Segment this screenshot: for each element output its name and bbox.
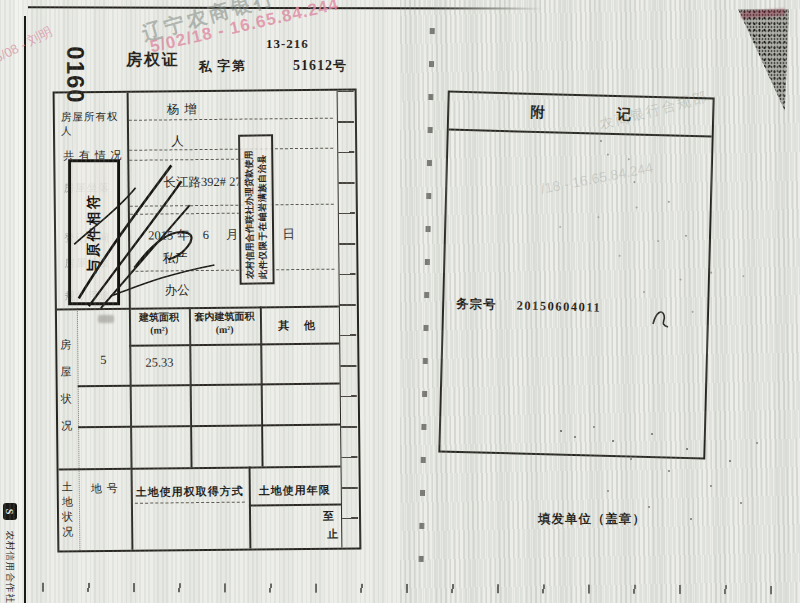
month-unit: 月 [226, 228, 239, 242]
char: 状 [62, 509, 73, 524]
doc-title: 房权证 [126, 50, 180, 71]
term-to: 止 [327, 527, 339, 542]
char: 状 [61, 391, 72, 406]
house-status-label: 房 屋 状 况 [57, 337, 75, 433]
write-line [129, 159, 249, 161]
char: 况 [61, 418, 72, 433]
serial-unit: 号 [333, 57, 346, 75]
owner-value: 杨增 [167, 101, 202, 118]
loan-restriction-stamp: 此件仅限于在岫岩满族自治县 农村信用合作联社办理贷款使用 [238, 134, 275, 284]
page-left-edge [24, 16, 26, 603]
co-ownership-value: 人 [171, 133, 184, 150]
inner-area-title: 套内建筑面积 [189, 310, 260, 323]
char: 房 [60, 337, 71, 352]
bank-logo-glyph: S [5, 509, 16, 515]
copy-verified-stamp: 与原件相符 [68, 159, 120, 305]
dust-specks [560, 430, 562, 432]
area-value: 25.33 [129, 355, 189, 371]
date-year: 2015 [148, 228, 173, 242]
doc-code: 13-216 [266, 36, 309, 52]
corner-shadow [737, 9, 789, 111]
write-line [129, 118, 333, 121]
other-header: 其 他 [260, 319, 339, 334]
restriction-line-1: 此件仅限于在岫岩满族自治县 [256, 139, 270, 279]
floors-value: 5 [77, 353, 129, 369]
edge-vertical-text: 农村信用合作社 [3, 531, 16, 603]
write-line [130, 213, 240, 215]
parcel-label: 地 号 [79, 481, 131, 497]
term-from: 至 [323, 509, 335, 524]
perforation-ticks [42, 583, 772, 595]
land-status-label: 土 地 状 况 [59, 479, 77, 537]
edge-ladder-column [337, 90, 359, 547]
owner-label: 房屋所有权人 [61, 110, 125, 139]
ink-smudge [98, 315, 114, 323]
divider [249, 467, 252, 549]
annex-title-divider [449, 129, 712, 138]
char: 况 [62, 524, 73, 539]
divider [78, 424, 340, 428]
use-value: 办公 [165, 282, 190, 299]
copy-verified-text: 与原件相符 [85, 168, 103, 298]
annex-title: 附 记 [449, 101, 712, 127]
file-number-row: 务宗号20150604011 [456, 296, 601, 317]
serial-number: 51612 [293, 58, 333, 74]
divider [249, 504, 341, 507]
write-line [130, 269, 334, 272]
inner-area-header: 套内建筑面积 (m²) [189, 310, 260, 336]
write-line [129, 148, 333, 151]
scanned-property-certificate: 辽宁农商银行 5/02/18 - 16.65.84.244 5/08 - 刘明 … [0, 0, 800, 603]
nature-value: 私产 [162, 250, 187, 267]
page-top-edge [28, 6, 543, 10]
annex-title-fu: 附 [530, 103, 545, 122]
inner-area-unit: (m²) [189, 323, 260, 336]
char: 屋 [60, 364, 71, 379]
binding-marks [418, 28, 435, 580]
floor-area-title: 建筑面积 [129, 311, 189, 324]
zidi-label: 字第 [217, 57, 247, 75]
divider [57, 306, 339, 311]
location-value: 长江路392# 27 [163, 174, 241, 192]
char: 土 [62, 479, 73, 494]
restriction-line-2: 农村信用合作联社办理贷款使用 [243, 139, 257, 279]
write-line [130, 204, 334, 207]
divider [78, 383, 340, 387]
floor-area-unit: (m²) [129, 324, 189, 337]
term-label: 土地使用年限 [251, 483, 339, 499]
file-number-label: 务宗号 [456, 297, 497, 312]
divider [59, 466, 341, 471]
issuer-label: 填发单位（盖章） [538, 511, 646, 528]
bank-logo: S [3, 503, 17, 520]
divider [77, 308, 81, 550]
divider [129, 343, 339, 347]
char: 地 [62, 494, 73, 509]
annex-box: 附 记 务宗号20150604011 [438, 91, 714, 460]
file-number-value: 20150604011 [516, 298, 601, 314]
floor-area-header: 建筑面积 (m²) [129, 311, 189, 337]
date-month: 6 [203, 228, 209, 242]
year-unit: 年 [177, 228, 190, 242]
write-line [135, 502, 245, 504]
day-unit: 日 [282, 227, 295, 241]
category-char: 私 [199, 58, 212, 76]
annex-title-ji: 记 [616, 105, 631, 124]
acquire-label: 土地使用权取得方式 [134, 484, 246, 500]
